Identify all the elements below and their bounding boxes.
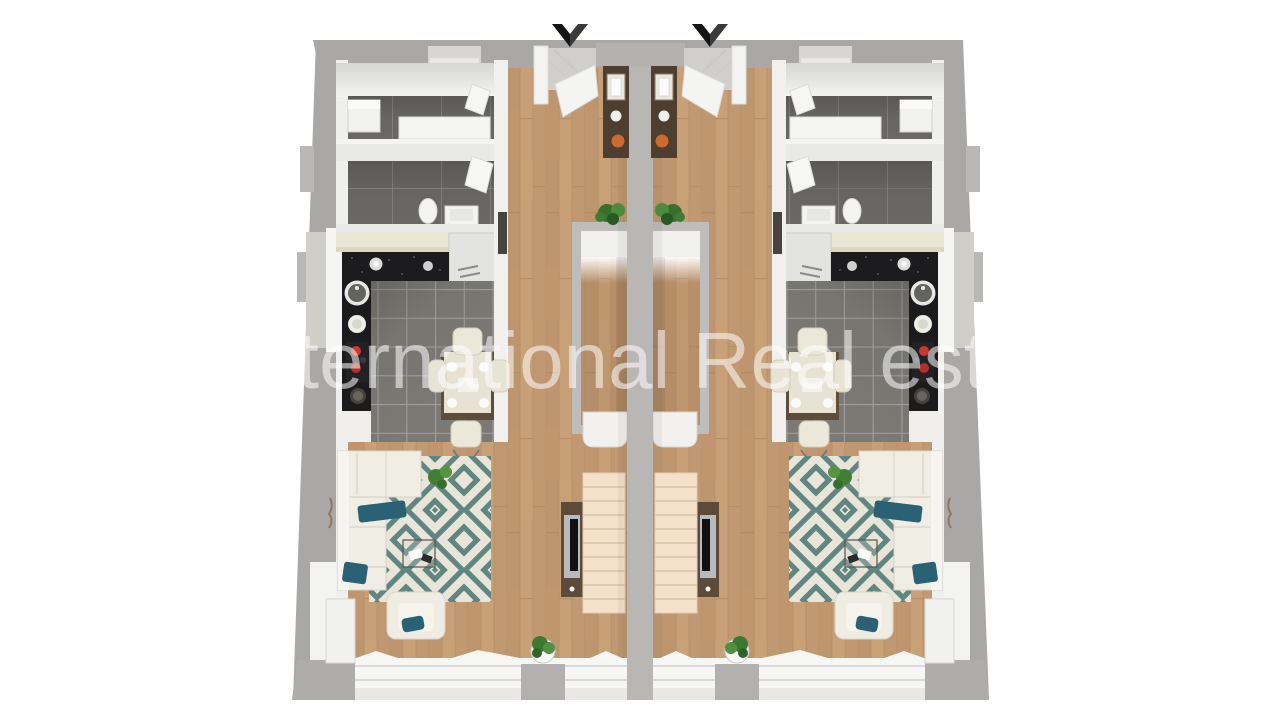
- svg-text:International Real estate: International Real estate: [230, 316, 1097, 405]
